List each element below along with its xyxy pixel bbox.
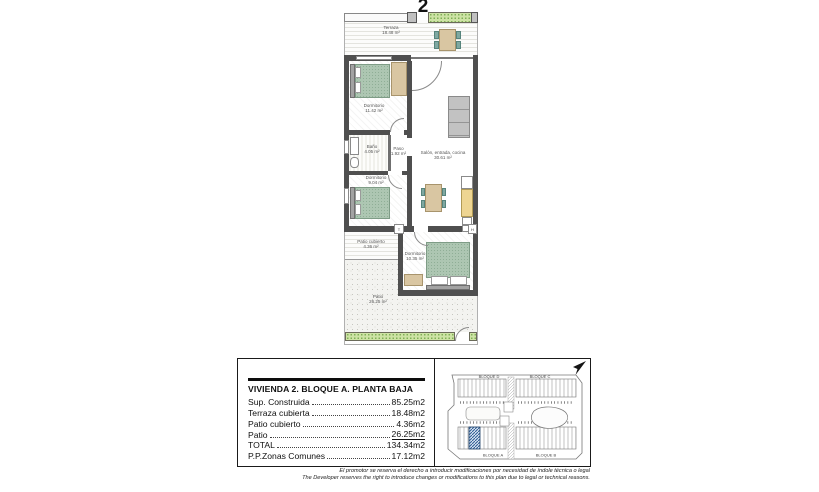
partition-main-lower — [407, 156, 412, 226]
room-area: 10.35 m² — [402, 256, 428, 261]
water-heater-label: T — [395, 225, 403, 234]
fridge — [461, 176, 473, 189]
dot-leader — [312, 404, 390, 405]
row-label: TOTAL — [248, 440, 275, 450]
site-block-label-d: BLOQUE D — [479, 374, 500, 379]
table-row: Patio cubierto 4.36m2 — [248, 418, 425, 429]
terrace-table — [439, 29, 456, 51]
kitchen-cabinets — [461, 189, 473, 217]
plan-sheet: 2 — [0, 0, 819, 492]
room-area: 26.25 m² — [360, 299, 396, 304]
room-area: 9.04 m² — [356, 180, 396, 185]
dining-chair — [442, 188, 446, 196]
sofa — [448, 96, 470, 138]
dining-chair — [421, 200, 425, 208]
room-area: 4.36 m² — [347, 244, 395, 249]
terrace-chair — [434, 31, 439, 39]
wall-salon-bottom-a — [407, 226, 414, 232]
title-rule — [248, 378, 425, 381]
disclaimer-line-en: The Developer reserves the right to intr… — [238, 475, 590, 482]
common-building — [500, 416, 509, 426]
room-label-salon: Salón, entrada, cocina 30.61 m² — [413, 150, 473, 160]
site-block-label-b: BLOQUE B — [536, 453, 557, 458]
wall-bedroom3-left — [398, 232, 403, 296]
room-area: 30.61 m² — [413, 155, 473, 160]
table-row: TOTAL 134.34m2 — [248, 440, 425, 451]
ground-line — [344, 344, 478, 345]
dining-chair — [442, 200, 446, 208]
dot-leader — [270, 437, 390, 438]
wall-right — [473, 55, 478, 296]
common-building — [504, 402, 513, 412]
garden-area — [466, 407, 500, 420]
room-label-terraza: Terraza 18.48 m² — [366, 25, 416, 35]
hedge — [345, 332, 455, 341]
table-row: Sup. Construida 85.25m2 — [248, 396, 425, 407]
site-plan-drawing: BLOQUE D BLOQUE C BLOQUE A BLOQUE B — [442, 369, 588, 463]
terrace-chair — [434, 41, 439, 49]
row-label: Terraza cubierta — [248, 408, 310, 418]
bed3-pillow — [431, 276, 448, 285]
row-label: Patio — [248, 430, 268, 440]
row-value: 18.48m2 — [392, 408, 425, 418]
room-area: 4.05 m² — [357, 149, 387, 154]
unit-strip — [516, 427, 576, 449]
window-top — [356, 56, 392, 60]
row-value: 85.25m2 — [392, 397, 425, 407]
row-label: Sup. Construida — [248, 397, 310, 407]
room-area: 1.92 m² — [390, 151, 407, 156]
terrace-glass-door — [411, 57, 473, 59]
bed3 — [426, 242, 470, 278]
row-label: P.P.Zonas Comunes — [248, 451, 325, 461]
dining-table — [425, 184, 442, 212]
pool-shape — [531, 407, 567, 428]
north-arrow-icon — [569, 361, 587, 376]
parapet-post — [407, 12, 417, 23]
planter-post — [471, 12, 478, 23]
room-label-dormitorio1: Dormitorio 11.42 m² — [352, 103, 396, 113]
room-label-bano: Baño 4.05 m² — [357, 144, 387, 154]
wall-bedroom3-bottom — [398, 290, 478, 296]
panel-divider — [434, 359, 435, 466]
water-heater-box: T — [394, 224, 404, 234]
hedge-end — [469, 332, 477, 341]
table-row: Patio 26.25m2 — [248, 429, 425, 440]
disclaimer-line-es: El promotor se reserva el derecho a intr… — [238, 468, 590, 475]
site-block-label-c: BLOQUE C — [530, 374, 551, 379]
info-panel: VIVIENDA 2. BLOQUE A. PLANTA BAJA Sup. C… — [237, 358, 591, 467]
unit-strip — [458, 427, 506, 449]
site-block-label-a: BLOQUE A — [483, 453, 504, 458]
dining-chair — [421, 188, 425, 196]
unit-strip — [516, 379, 576, 397]
table-row: Terraza cubierta 18.48m2 — [248, 407, 425, 418]
bed3-headboard — [426, 285, 470, 290]
room-label-dormitorio2: Dormitorio 9.04 m² — [356, 175, 396, 185]
room-label-patio-cubierto: Patio cubierto 4.36 m² — [347, 239, 395, 249]
terrace-parapet — [344, 13, 408, 22]
room-area: 18.48 m² — [366, 30, 416, 35]
row-label: Patio cubierto — [248, 419, 301, 429]
room-area: 11.42 m² — [352, 108, 396, 113]
surface-table: Sup. Construida 85.25m2 Terraza cubierta… — [248, 396, 425, 461]
panel-title: VIVIENDA 2. BLOQUE A. PLANTA BAJA — [248, 384, 430, 394]
table-row: P.P.Zonas Comunes 17.12m2 — [248, 450, 425, 461]
room-label-paso: Paso 1.92 m² — [390, 146, 407, 156]
partition-main-upper — [407, 61, 412, 138]
bed1-pillow — [355, 82, 361, 93]
bed2-pillow — [355, 190, 361, 201]
terrace-chair — [456, 31, 461, 39]
toilet — [350, 157, 359, 168]
utility-box-label: H — [469, 225, 476, 234]
unit-strip — [458, 379, 506, 397]
dot-leader — [277, 447, 385, 448]
dot-leader — [327, 458, 389, 459]
partition-bedroom1-stub — [404, 130, 407, 135]
floor-plan: T H Terraza 18.48 m² Dormitorio 11.42 m²… — [344, 8, 478, 353]
room-label-dormitorio3: Dormitorio 10.35 m² — [402, 251, 428, 261]
row-value: 26.25m2 — [392, 429, 425, 440]
dresser3 — [404, 274, 423, 286]
wardrobe1 — [391, 62, 407, 96]
room-label-patio: Patio 26.25 m² — [360, 294, 396, 304]
dot-leader — [312, 415, 390, 416]
terrace-chair — [456, 41, 461, 49]
planter — [428, 12, 472, 23]
bed1-pillow — [355, 67, 361, 78]
central-path — [508, 423, 514, 459]
bed2-pillow — [355, 204, 361, 215]
utility-box: H — [468, 224, 477, 234]
disclaimer: El promotor se reserva el derecho a intr… — [238, 468, 590, 481]
row-value: 4.36m2 — [396, 419, 425, 429]
dot-leader — [303, 426, 395, 427]
bed3-pillow — [450, 276, 467, 285]
row-value: 17.12m2 — [392, 451, 425, 461]
row-value: 134.34m2 — [387, 440, 425, 450]
highlighted-unit — [469, 427, 480, 449]
